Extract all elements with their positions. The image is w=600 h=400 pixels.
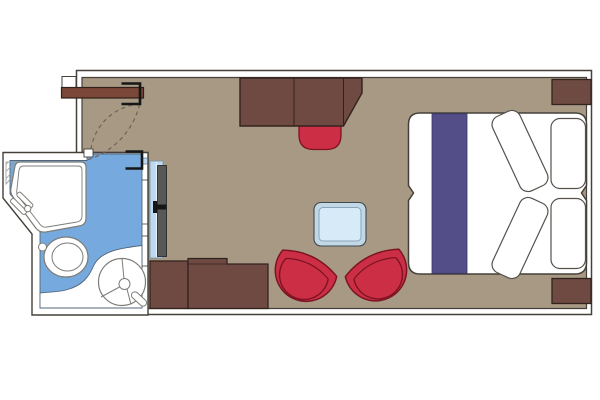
headboard-pillow-bottom — [551, 199, 586, 269]
bed-runner — [432, 114, 467, 273]
nightstand-top — [552, 80, 591, 105]
bathroom-sliding-door — [158, 166, 167, 257]
dresser-left — [150, 261, 188, 309]
floor-plan — [0, 0, 600, 400]
floor-plan-page — [0, 0, 600, 400]
dresser-right-body — [188, 259, 268, 309]
entrance-door — [62, 88, 144, 99]
desk-cabinet — [240, 78, 362, 126]
bathroom-door-jamb — [84, 149, 93, 157]
desk-stool — [299, 124, 341, 150]
coffee-table-top — [319, 208, 361, 242]
sink-drain — [119, 279, 130, 290]
dresser-right — [188, 259, 268, 309]
bathroom — [3, 153, 167, 316]
headboard-pillow-top — [551, 119, 586, 189]
flush-button — [39, 243, 47, 251]
door-jamb — [62, 77, 76, 88]
double-bed — [409, 108, 587, 282]
door-handle-stem — [157, 205, 167, 210]
nightstand-bottom — [552, 279, 591, 304]
door-handle-bar — [153, 201, 157, 213]
coffee-table — [314, 203, 366, 247]
